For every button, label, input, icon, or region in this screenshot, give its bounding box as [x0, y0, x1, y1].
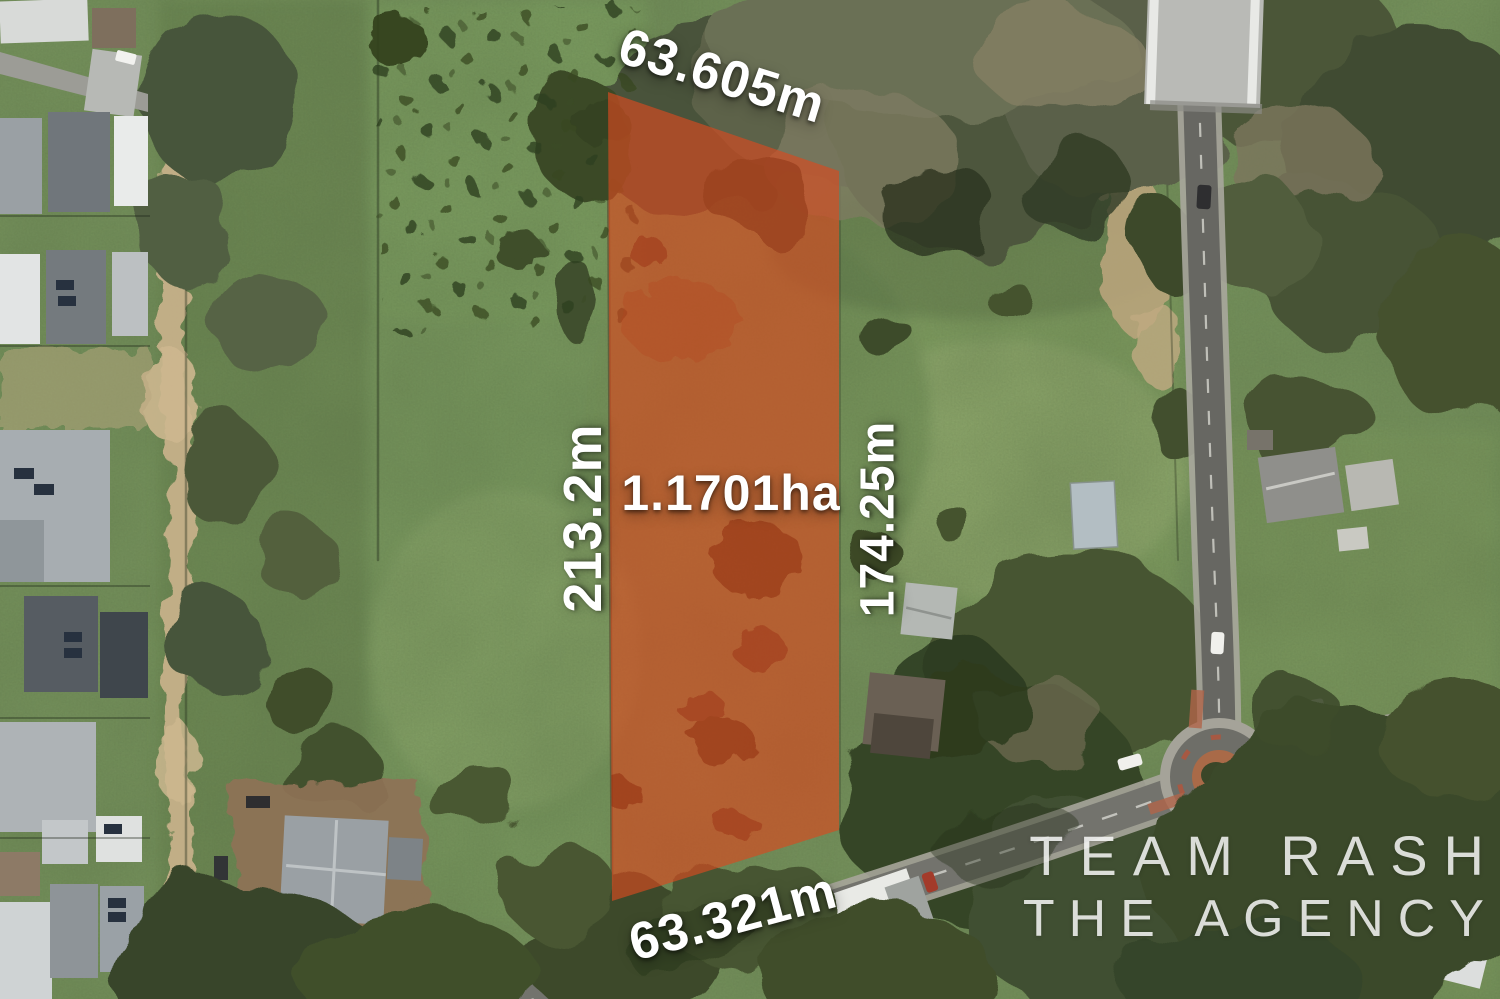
watermark-line2: THE AGENCY	[1023, 890, 1498, 950]
watermark-line1: TEAM RASH	[1023, 824, 1500, 888]
agency-watermark: TEAM RASH THE AGENCY	[1023, 824, 1484, 950]
orchard-trees	[368, 6, 638, 330]
property-aerial-image: 63.605m 213.2m 1.1701ha 174.25m 63.321m …	[0, 0, 1500, 999]
dimension-label-left: 213.2m	[552, 423, 614, 612]
dimension-label-right: 174.25m	[851, 421, 906, 618]
main-road	[1196, 0, 1219, 778]
parcel-area-label: 1.1701ha	[621, 464, 840, 522]
bridge	[1144, 0, 1264, 114]
